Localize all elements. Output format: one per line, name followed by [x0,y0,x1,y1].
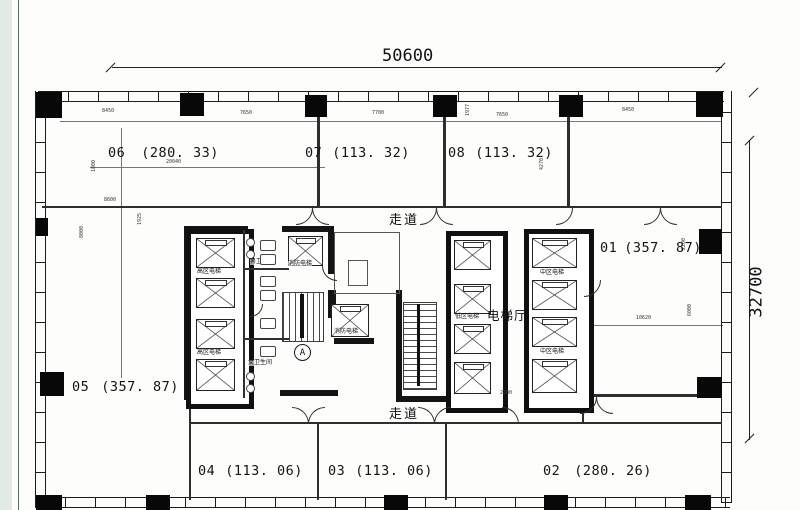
toilet-wall [243,338,289,340]
door-arc [596,397,613,414]
stair-rail [300,294,304,338]
wc-fixture [260,290,276,301]
dim-text: 4270 [540,158,545,170]
dim-tick [749,88,759,98]
door-arc [250,304,263,317]
overall-height-dimension: 32700 [747,266,767,317]
elevator-cell [196,278,235,308]
dim-line [90,167,325,168]
elevator-cell [532,238,577,268]
toilet-wall [243,268,289,270]
room-area: (113. 32) [332,145,410,161]
column [433,95,457,117]
dim-text: 2300 [500,391,512,396]
sheet-margin-strip [0,0,12,510]
outer-wall-top [38,91,724,102]
elevator-cell [532,359,577,393]
sink-fixture [246,384,255,393]
grid-marker-letter: A [300,348,305,358]
outer-wall-left [35,91,46,503]
wc-fixture [260,240,276,251]
dim-text: 7700 [372,111,384,116]
shaft-box [348,260,368,286]
room-area: (280. 26) [574,463,652,479]
dim-line [60,121,722,122]
wc-fixture [260,254,276,265]
elevator-cell [196,359,235,391]
dim-text: 20040 [166,160,181,165]
room-number: 03 [328,463,345,479]
core-wall [334,338,374,344]
door-arc [644,208,661,225]
core-wall [396,290,402,400]
elevator-cell [532,280,577,310]
dim-text: 8450 [622,108,634,113]
sheet-border-line [18,0,19,510]
room-label-02: 02 (280. 26) [543,463,652,479]
elevator-label-low: 低区电梯 [455,314,479,320]
room-number: 08 [448,145,465,161]
outer-wall-right [721,91,732,503]
room-number: 04 [198,463,215,479]
corridor-label-top: 走道 [389,209,419,228]
corridor-label-bottom: 走道 [389,403,419,422]
elevator-cell [454,362,491,394]
door-arc [502,407,519,424]
stair-rail [417,304,420,386]
dim-text: 1925 [138,213,143,225]
door-arc [584,280,601,297]
column [36,218,48,236]
elevator-cell [196,319,235,349]
dimension-line-top [112,67,722,68]
door-arc [322,266,337,281]
grid-marker-a: A [294,344,311,361]
room-label-08: 08 (113. 32) [448,145,553,161]
door-arc [312,208,329,225]
elevator-cell [196,238,235,268]
door-arc [580,397,597,414]
door-arc [436,208,453,225]
column [685,495,711,510]
door-arc [660,208,677,225]
column [544,495,568,510]
dim-text: 1800 [92,160,97,172]
wc-fixture [260,318,276,329]
column [305,95,327,117]
wc-fixture [260,346,276,357]
wc-fixture [260,276,276,287]
elevator-cell [454,284,491,314]
dim-text: 7650 [496,113,508,118]
partition-wall [445,424,447,500]
dim-text: 10620 [636,316,651,321]
room-number: 05 [72,379,89,395]
room-area: (357. 87) [624,240,702,256]
partition-wall [317,424,319,500]
dim-line [121,128,122,378]
door-arc [418,407,435,424]
core-wall [280,390,338,396]
elevator-label-mid: 中区电梯 [540,349,564,355]
room-number: 02 [543,463,560,479]
door-arc [420,208,437,225]
elevator-label-fire: 消防电梯 [334,329,358,335]
outer-wall-bottom [35,497,730,508]
dim-text: 6000 [688,304,693,316]
dim-text: 7650 [240,111,252,116]
elevator-cell [454,240,491,270]
elevator-hall-label: 电梯厅 [487,305,528,324]
staircase [403,302,437,390]
sink-fixture [246,238,255,247]
corridor-wall-bottom [190,422,722,424]
door-arc [308,407,325,424]
core-wall [396,396,452,402]
door-arc [292,407,309,424]
sink-fixture [246,372,255,381]
column [180,93,204,116]
column [699,229,722,254]
dim-text: 8000 [80,226,85,238]
dim-text: 2200 [682,238,687,250]
dim-text: 8600 [104,198,116,203]
elevator-label-mid: 中区电梯 [540,270,564,276]
elevator-cell [532,317,577,347]
room-label-06: 06 (280. 33) [108,145,219,161]
column [696,92,723,117]
room-label-04: 04 (113. 06) [198,463,303,479]
core-wall [282,226,334,232]
corridor-wall-top [42,206,722,208]
room-number: 07 [305,145,322,161]
room-label-03: 03 (113. 06) [328,463,433,479]
room-number: 06 [108,145,125,161]
elevator-label-high: 高区电梯 [197,269,221,275]
room-area: (113. 06) [355,463,433,479]
floor-plan-sheet: 50600 32700 [0,0,800,510]
room-label-07: 07 (113. 32) [305,145,410,161]
door-arc [296,208,313,225]
room-label-05: 05 (357. 87) [72,379,179,395]
dim-text: 8450 [102,109,114,114]
room-area: (113. 06) [225,463,303,479]
column [36,495,62,510]
column [40,372,64,396]
toilet-label-female: 女卫生间 [248,360,272,366]
door-arc [434,407,451,424]
elevator-label-fire: 消防电梯 [288,261,312,267]
dim-text: 1977 [466,104,471,116]
column [697,377,722,398]
column [36,92,62,118]
sink-fixture [246,250,255,259]
elevator-cell [454,324,491,354]
toilet-wall [243,230,245,398]
room-area: (357. 87) [101,379,179,395]
room-number: 01 [600,240,617,256]
column [559,95,583,117]
overall-width-dimension: 50600 [382,46,433,66]
door-arc [556,208,573,225]
elevator-label-high: 高区电梯 [197,350,221,356]
column [146,495,170,510]
column [384,495,408,510]
